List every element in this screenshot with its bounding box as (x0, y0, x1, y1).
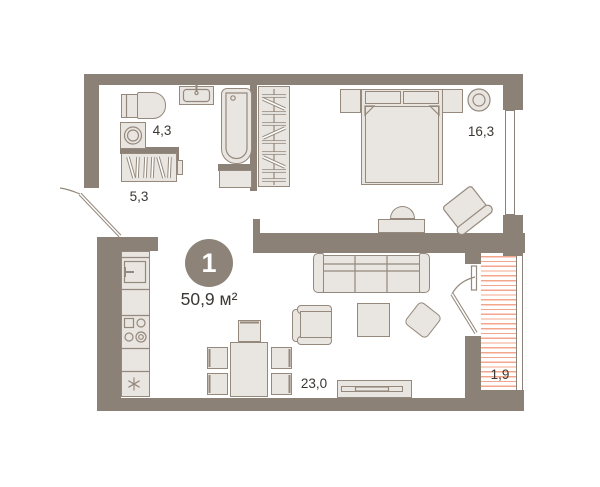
toilet-tank (121, 94, 138, 118)
dining-chair-left-top (207, 347, 228, 369)
wall-bedroom-living-nub (253, 219, 260, 233)
unit-number-badge: 1 (185, 239, 233, 287)
desk-chair (390, 206, 415, 219)
room-label-hallway: 5,3 (121, 189, 157, 204)
wall-right-mid-block (503, 215, 523, 256)
room-label-balcony: 1,9 (483, 367, 517, 382)
washing-machine (120, 122, 146, 149)
desk (378, 219, 425, 233)
hall-closet-nub (177, 160, 183, 175)
armchair-seat (300, 311, 332, 338)
wardrobe (258, 86, 290, 187)
hall-closet (121, 153, 177, 182)
bedroom-window (505, 110, 515, 215)
balcony-door-swing (452, 266, 477, 333)
nightstand-right (442, 89, 463, 113)
dining-chair-top (238, 320, 261, 342)
wall-bottom (97, 398, 465, 411)
wall-left-lower (97, 237, 121, 411)
wall-balcony-left-upper (465, 253, 481, 264)
kitchen-counter (121, 251, 150, 397)
pillow-right (403, 91, 439, 104)
coffee-table (357, 303, 390, 337)
dining-table (230, 342, 268, 397)
dining-chair-right-bottom (271, 373, 292, 395)
room-label-bathroom: 4,3 (144, 123, 180, 138)
entry-door-swing (60, 188, 120, 236)
dining-chair-left-bottom (207, 373, 228, 395)
wall-balcony-left-lower (465, 336, 481, 398)
floor-plan: 4,3 5,3 16,3 23,0 1,9 1 50,9 м² (0, 0, 600, 487)
bathtub (221, 88, 252, 164)
bathroom-sink (179, 86, 214, 105)
tv (341, 386, 403, 392)
pouf (403, 300, 442, 339)
sofa-body (323, 255, 420, 293)
bed-blanket (365, 106, 439, 183)
wall-top (84, 74, 523, 85)
bath-cabinet (219, 170, 252, 188)
toilet-bowl (137, 92, 166, 119)
sofa-armrest-right (419, 253, 430, 293)
balcony-glazing (516, 256, 523, 390)
wall-left-upper (84, 85, 99, 188)
pillow-left (365, 91, 401, 104)
wall-top-right-corner (503, 85, 523, 110)
total-area-label: 50,9 м² (159, 289, 259, 310)
bedroom-armchair (440, 184, 494, 237)
mirror (468, 89, 490, 111)
nightstand-left (340, 89, 361, 113)
dining-chair-right-top (271, 347, 292, 369)
room-label-living-kitchen: 23,0 (292, 376, 336, 391)
wall-hall-kitchen-stub (97, 237, 158, 251)
wall-bedroom-living (253, 233, 525, 253)
room-label-bedroom: 16,3 (459, 124, 503, 139)
